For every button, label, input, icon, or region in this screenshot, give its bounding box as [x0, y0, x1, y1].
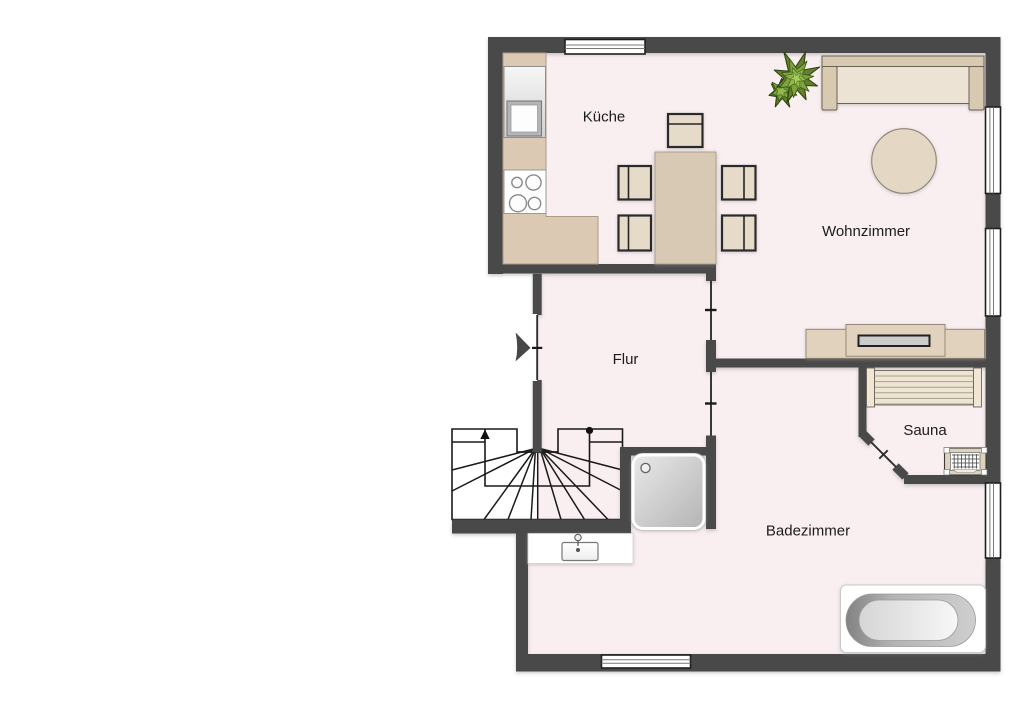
svg-text:Flur: Flur [613, 351, 639, 368]
svg-text:Sauna: Sauna [903, 422, 947, 439]
svg-text:Küche: Küche [583, 109, 626, 126]
svg-text:Badezimmer: Badezimmer [766, 523, 850, 540]
svg-text:Wohnzimmer: Wohnzimmer [822, 223, 910, 240]
